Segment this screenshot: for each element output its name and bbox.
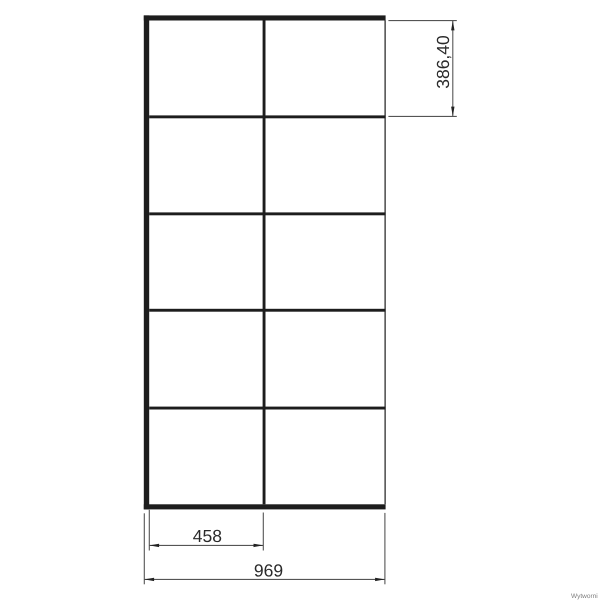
svg-text:969: 969 — [254, 561, 283, 581]
svg-text:386,40: 386,40 — [433, 35, 453, 89]
svg-text:458: 458 — [193, 526, 222, 546]
svg-text:Wytworni Ludwik sp: Wytworni Ludwik sp — [571, 593, 600, 600]
